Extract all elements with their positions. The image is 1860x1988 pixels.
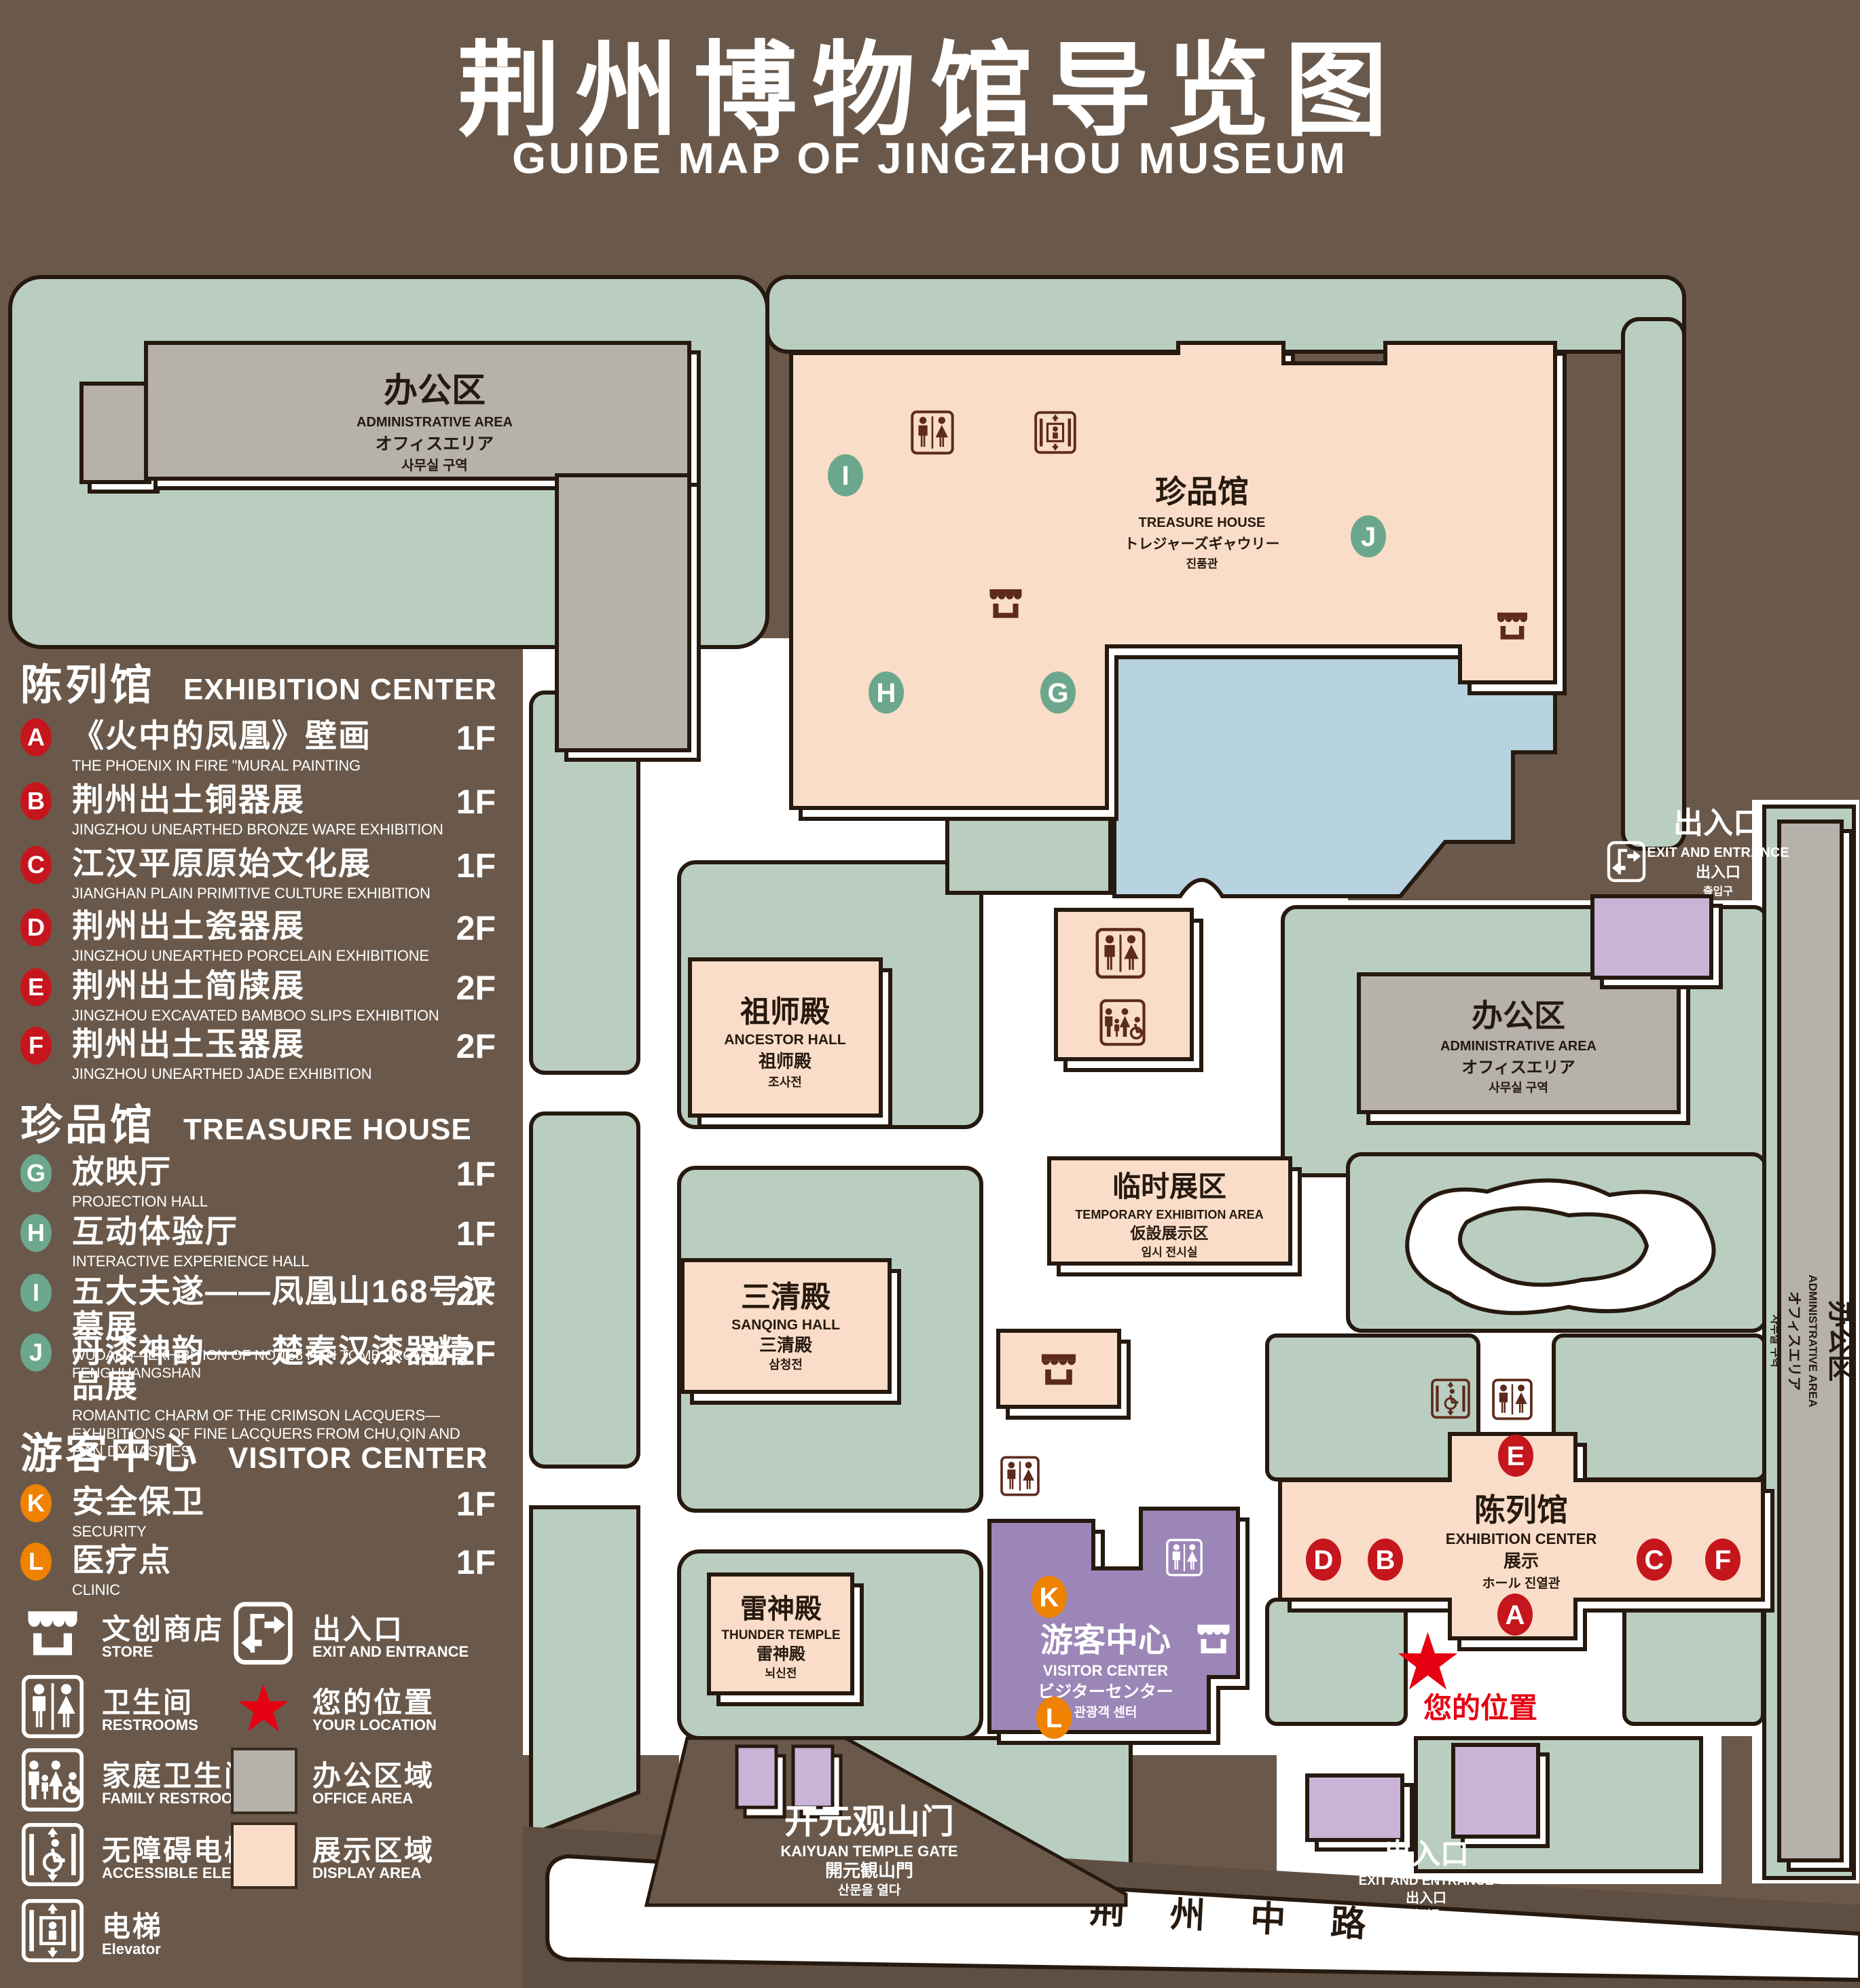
svg-text:E: E bbox=[1507, 1441, 1525, 1471]
gate-pillar bbox=[737, 1746, 776, 1807]
gate-label-cn: 开元观山门 bbox=[784, 1803, 954, 1841]
marker-badge: E bbox=[20, 968, 52, 1006]
legend-item-l: L 医疗点 CLINIC 1F bbox=[20, 1543, 504, 1599]
temp-label-cn: 临时展区 bbox=[1112, 1171, 1226, 1202]
ancestor-label-en: ANCESTOR HALL bbox=[724, 1032, 845, 1048]
marker-A: A bbox=[1497, 1594, 1533, 1636]
svg-text:B: B bbox=[1376, 1545, 1396, 1575]
legend-item-f: F 荆州出土玉器展 JINGZHOU UNEARTHED JADE EXHIBI… bbox=[20, 1027, 504, 1083]
sanqing-label-en: SANQING HALL bbox=[731, 1317, 840, 1333]
floor-label: 1F bbox=[456, 1214, 496, 1253]
display-area-swatch bbox=[231, 1822, 297, 1889]
lawn-top-strip bbox=[767, 277, 1684, 352]
treasure-label-kr: 진품관 bbox=[1186, 557, 1218, 570]
svg-text:G: G bbox=[1047, 678, 1068, 708]
marker-K: K bbox=[1032, 1576, 1067, 1618]
exit-br-label-kr: 출입구 bbox=[1412, 1909, 1440, 1920]
entrance-block bbox=[1453, 1745, 1538, 1837]
marker-B: B bbox=[1368, 1539, 1403, 1581]
building-ancestor-hall: 祖师殿 ANCESTOR HALL 祖师殿 조사전 bbox=[690, 959, 890, 1126]
admin-tl-label-en: ADMINISTRATIVE AREA bbox=[357, 415, 513, 430]
marker-badge: B bbox=[20, 782, 52, 820]
legend-item-b: B 荆州出土铜器展 JINGZHOU UNEARTHED BRONZE WARE… bbox=[20, 782, 504, 839]
section-title-en: EXHIBITION CENTER bbox=[183, 673, 497, 706]
marker-C: C bbox=[1637, 1539, 1672, 1581]
marker-badge: F bbox=[20, 1027, 52, 1065]
marker-E: E bbox=[1498, 1435, 1533, 1477]
marker-badge: D bbox=[20, 908, 52, 946]
legend-item-d: D 荆州出土瓷器展 JINGZHOU UNEARTHED PORCELAIN E… bbox=[20, 908, 504, 965]
marker-D: D bbox=[1306, 1539, 1341, 1581]
visitor-label-en: VISITOR CENTER bbox=[1043, 1662, 1168, 1679]
legend-item-h: H 互动体验厅 INTERACTIVE EXPERIENCE HALL 1F bbox=[20, 1214, 504, 1270]
exhibition-label-en: EXHIBITION CENTER bbox=[1446, 1530, 1597, 1547]
exit-tr-label-cn: 出入口 bbox=[1673, 807, 1763, 840]
building-thunder-temple: 雷神殿 THUNDER TEMPLE 雷神殿 뇌신전 bbox=[709, 1575, 862, 1704]
treasure-label-en: TREASURE HOUSE bbox=[1139, 515, 1266, 530]
admin-tl-label-jp: オフィスエリア bbox=[376, 435, 494, 454]
exit-icon bbox=[231, 1601, 295, 1665]
lawn-lane-c bbox=[531, 1507, 638, 1835]
lawn-exh-3 bbox=[1267, 1600, 1406, 1724]
thunder-label-kr: 뇌신전 bbox=[765, 1667, 797, 1680]
legend-item-k: K 安全保卫 SECURITY 1F bbox=[20, 1484, 504, 1541]
exhibition-label-cn: 陈列馆 bbox=[1474, 1492, 1568, 1528]
floor-label: 1F bbox=[456, 1154, 496, 1194]
building-store-small bbox=[998, 1331, 1129, 1418]
entrance-block bbox=[1307, 1775, 1402, 1840]
svg-text:C: C bbox=[1645, 1545, 1664, 1575]
floor-label: 1-2F bbox=[426, 1333, 496, 1373]
section-title-en: VISITOR CENTER bbox=[228, 1441, 488, 1475]
treasure-label-cn: 珍品馆 bbox=[1155, 474, 1249, 509]
marker-L: L bbox=[1036, 1697, 1072, 1739]
admin-strip-label-cn: 办公区 bbox=[1825, 1300, 1855, 1382]
floor-label: 1F bbox=[456, 718, 496, 758]
office-area-swatch bbox=[231, 1748, 297, 1814]
gate-label-jp: 開元観山門 bbox=[825, 1860, 913, 1881]
floor-label: 1F bbox=[456, 846, 496, 885]
section-title-cn: 游客中心 bbox=[20, 1431, 200, 1477]
family-restroom-icon bbox=[20, 1748, 85, 1812]
admin-strip-label-jp: オフィスエリア bbox=[1786, 1291, 1802, 1391]
lawn-lane-b bbox=[531, 1113, 638, 1467]
admin-r-label-kr: 사무실 구역 bbox=[1489, 1081, 1548, 1094]
elevator-icon bbox=[20, 1898, 85, 1963]
admin-tl-label-kr: 사무실 구역 bbox=[401, 458, 468, 473]
ancestor-label-kr: 조사전 bbox=[768, 1075, 802, 1089]
sanqing-label-cn2: 三清殿 bbox=[759, 1335, 812, 1355]
marker-badge: J bbox=[20, 1333, 52, 1372]
exhibition-label-mix: ホール 진열관 bbox=[1482, 1576, 1561, 1591]
section-treasure-house: 珍品馆TREASURE HOUSE bbox=[20, 1090, 472, 1152]
section-exhibition-center: 陈列馆EXHIBITION CENTER bbox=[20, 650, 497, 712]
floor-label: 2F bbox=[456, 1027, 496, 1066]
guide-map-poster: 办公区 ADMINISTRATIVE AREA オフィスエリア 사무실 구역 珍… bbox=[0, 0, 1860, 1988]
exhibition-label-cn2: 展示 bbox=[1503, 1551, 1539, 1571]
restroom-icon bbox=[20, 1674, 85, 1739]
gate-label-kr: 산문을 열다 bbox=[838, 1883, 901, 1898]
floor-label: 2F bbox=[456, 968, 496, 1008]
admin-tl-label-cn: 办公区 bbox=[384, 371, 486, 409]
svg-text:A: A bbox=[1506, 1600, 1525, 1630]
marker-badge: A bbox=[20, 718, 52, 756]
page-subtitle: GUIDE MAP OF JINGZHOU MUSEUM bbox=[0, 133, 1860, 183]
svg-text:K: K bbox=[1040, 1583, 1059, 1613]
thunder-label-cn: 雷神殿 bbox=[740, 1594, 822, 1624]
exit-br-label-cn: 出入口 bbox=[1383, 1838, 1469, 1870]
floor-label: 1F bbox=[456, 1543, 496, 1582]
gate-label-en: KAIYUAN TEMPLE GATE bbox=[780, 1843, 958, 1860]
your-location-star-icon bbox=[236, 1681, 291, 1735]
admin-strip-label-kr: 사무실 구역 bbox=[1769, 1314, 1781, 1367]
marker-badge: G bbox=[20, 1154, 52, 1192]
legend-item-e: E 荆州出土简牍展 JINGZHOU EXCAVATED BAMBOO SLIP… bbox=[20, 968, 504, 1025]
marker-I: I bbox=[828, 454, 863, 496]
building-sanqing-hall: 三清殿 SANQING HALL 三清殿 삼청전 bbox=[682, 1260, 899, 1403]
section-visitor-center: 游客中心VISITOR CENTER bbox=[20, 1419, 488, 1480]
marker-J: J bbox=[1351, 515, 1386, 557]
exit-tr-label-cn2: 出入口 bbox=[1696, 864, 1740, 881]
marker-H: H bbox=[869, 671, 904, 714]
legend-item-c: C 江汉平原原始文化展 JIANGHAN PLAIN PRIMITIVE CUL… bbox=[20, 846, 504, 902]
legend-item-a: A 《火中的凤凰》壁画 THE PHOENIX IN FIRE "MURAL P… bbox=[20, 718, 504, 775]
floor-label: 1F bbox=[456, 1484, 496, 1524]
entrance-block bbox=[1592, 896, 1711, 978]
accessible-elevator-icon bbox=[20, 1822, 85, 1887]
marker-G: G bbox=[1040, 671, 1076, 714]
building-restrooms-center bbox=[1056, 910, 1201, 1070]
marker-badge: K bbox=[20, 1484, 52, 1522]
marker-badge: C bbox=[20, 846, 52, 884]
svg-text:D: D bbox=[1314, 1545, 1334, 1575]
admin-r-label-jp: オフィスエリア bbox=[1461, 1059, 1575, 1077]
sanqing-label-cn: 三清殿 bbox=[741, 1281, 831, 1314]
floor-label: 1F bbox=[456, 782, 496, 822]
marker-badge: H bbox=[20, 1214, 52, 1252]
gate-pillar bbox=[793, 1746, 833, 1807]
treasure-label-jp: トレジャーズギャウリー bbox=[1125, 536, 1280, 552]
svg-text:I: I bbox=[841, 461, 849, 491]
lawn-exh-4 bbox=[1624, 1600, 1763, 1724]
svg-text:J: J bbox=[1361, 522, 1376, 552]
section-title-cn: 珍品馆 bbox=[20, 1102, 155, 1149]
building-temporary-exhibition: 临时展区 TEMPORARY EXHIBITION AREA 仮設展示区 임시 … bbox=[1049, 1158, 1300, 1274]
marker-badge: L bbox=[20, 1543, 52, 1581]
your-location-label: 您的位置 bbox=[1423, 1692, 1537, 1724]
floor-label: 2F bbox=[456, 908, 496, 948]
admin-r-label-en: ADMINISTRATIVE AREA bbox=[1440, 1039, 1597, 1054]
floor-label: 2F bbox=[456, 1274, 496, 1313]
legend-item-g: G 放映厅 PROJECTION HALL 1F bbox=[20, 1154, 504, 1211]
garden-paths bbox=[1407, 1181, 1713, 1313]
section-title-en: TREASURE HOUSE bbox=[183, 1113, 472, 1146]
temp-label-jp: 仮設展示区 bbox=[1130, 1224, 1209, 1242]
marker-badge: I bbox=[20, 1274, 52, 1312]
lawn-right-strip bbox=[1623, 319, 1684, 849]
exit-br-label-cn2: 出入口 bbox=[1406, 1890, 1446, 1906]
visitor-label-cn: 游客中心 bbox=[1040, 1623, 1171, 1659]
temp-label-en: TEMPORARY EXHIBITION AREA bbox=[1075, 1208, 1263, 1221]
ancestor-label-cn2: 祖师殿 bbox=[758, 1051, 812, 1071]
svg-text:F: F bbox=[1715, 1545, 1731, 1575]
temp-label-kr: 임시 전시실 bbox=[1142, 1245, 1198, 1259]
admin-strip-label-en: ADMINISTRATIVE AREA bbox=[1806, 1274, 1819, 1407]
exit-tr-label-en: EXIT AND ENTRANCE bbox=[1647, 845, 1789, 860]
thunder-label-en: THUNDER TEMPLE bbox=[721, 1628, 840, 1642]
lawn-courtyard bbox=[947, 815, 1110, 893]
admin-r-label-cn: 办公区 bbox=[1472, 998, 1565, 1033]
ancestor-label-cn: 祖师殿 bbox=[740, 995, 830, 1029]
exit-br-label-en: EXIT AND ENTRANCE bbox=[1359, 1874, 1494, 1888]
sanqing-label-kr: 삼청전 bbox=[769, 1358, 803, 1372]
svg-text:H: H bbox=[877, 678, 896, 708]
visitor-label-kr: 관광객 센터 bbox=[1074, 1705, 1137, 1720]
section-title-cn: 陈列馆 bbox=[20, 662, 155, 709]
thunder-label-cn2: 雷神殿 bbox=[756, 1645, 806, 1663]
marker-F: F bbox=[1705, 1539, 1740, 1581]
svg-text:L: L bbox=[1046, 1704, 1062, 1733]
building-admin-right: 办公区 ADMINISTRATIVE AREA オフィスエリア 사무실 구역 bbox=[1359, 974, 1688, 1123]
building-admin-strip: 办公区 ADMINISTRATIVE AREA オフィスエリア 사무실 구역 bbox=[1764, 807, 1855, 1878]
store-icon bbox=[20, 1601, 85, 1665]
